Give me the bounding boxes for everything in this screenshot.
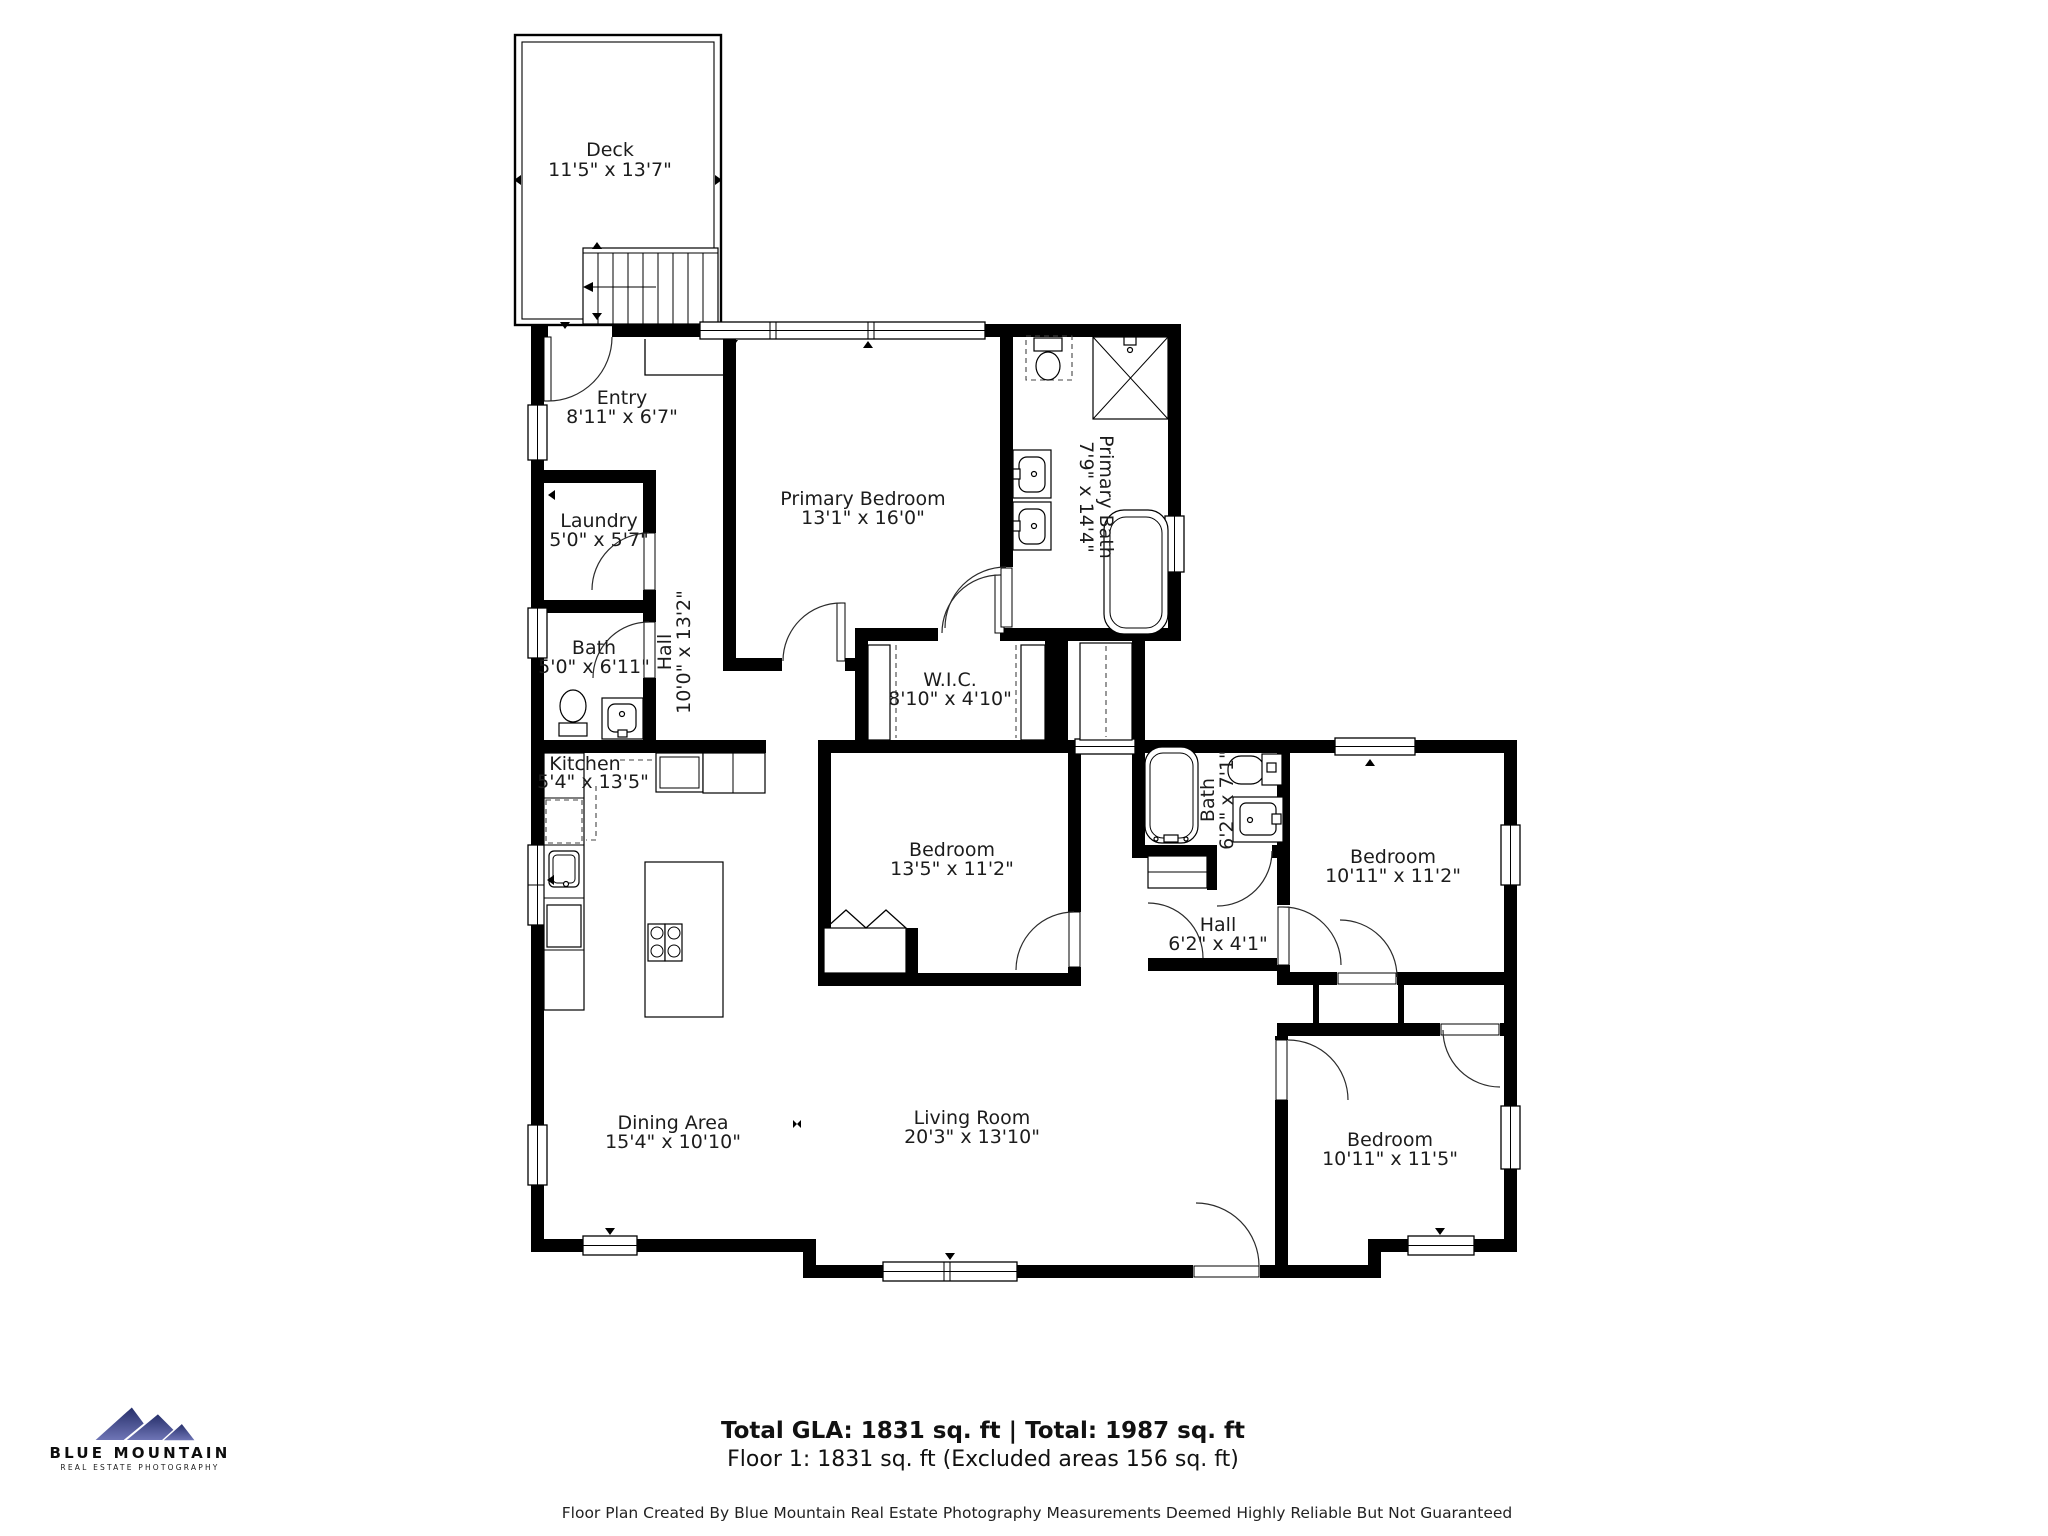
footer-floor: Floor 1: 1831 sq. ft (Excluded areas 156… [727, 1447, 1239, 1472]
floor-plan-canvas: Deck 11'5" x 13'7" Entry 8'11" x 6'7" La… [0, 0, 2048, 1536]
lower-bedroom-door-leaf [1276, 1040, 1287, 1100]
svg-text:Deck: Deck [586, 139, 634, 161]
svg-text:15'4" x 10'10": 15'4" x 10'10" [605, 1131, 741, 1153]
window-band-top [700, 322, 985, 339]
window-dining-bottom [583, 1236, 637, 1255]
svg-text:13'1" x 16'0": 13'1" x 16'0" [801, 507, 925, 529]
entry-closet [645, 339, 725, 375]
sink-icon [1013, 502, 1051, 550]
room-label-hall-main: Hall 10'0" x 13'2" [654, 590, 695, 714]
room-label-dining: Dining Area 15'4" x 10'10" [605, 1112, 741, 1153]
room-label-bath-main: Bath 5'0" x 6'11" [538, 637, 650, 678]
room-label-bedroom-lower-right: Bedroom 10'11" x 11'5" [1322, 1129, 1458, 1170]
svg-text:6'2" x 7'1": 6'2" x 7'1" [1216, 750, 1238, 850]
room-label-deck: Deck 11'5" x 13'7" [548, 139, 672, 181]
primary-bedroom-door-leaf [837, 603, 845, 661]
svg-text:5'0" x 6'11": 5'0" x 6'11" [538, 656, 650, 678]
mountain-icon [93, 1406, 196, 1441]
room-label-kitchen: Kitchen 5'4" x 13'5" [537, 753, 649, 793]
room-label-laundry: Laundry 5'0" x 5'7" [549, 510, 649, 551]
upper-closet-door-leaf [1338, 973, 1396, 984]
window-bedroom-lower-right [1501, 1106, 1520, 1169]
svg-text:11'5" x 13'7": 11'5" x 13'7" [548, 159, 672, 181]
svg-text:Primary Bath: Primary Bath [1095, 435, 1117, 559]
room-label-primary-bedroom: Primary Bedroom 13'1" x 16'0" [780, 488, 945, 529]
logo-name: BLUE MOUNTAIN [50, 1444, 231, 1462]
svg-text:10'0" x 13'2": 10'0" x 13'2" [673, 590, 695, 714]
svg-text:10'11" x 11'5": 10'11" x 11'5" [1322, 1148, 1458, 1170]
svg-text:7'9" x 14'4": 7'9" x 14'4" [1075, 441, 1097, 553]
window-wing-top [1335, 738, 1415, 755]
window-entry-left [528, 405, 547, 460]
svg-text:20'3" x 13'10": 20'3" x 13'10" [904, 1126, 1040, 1148]
room-label-hall-small: Hall 6'2" x 4'1" [1168, 914, 1268, 955]
svg-text:6'2" x 4'1": 6'2" x 4'1" [1168, 933, 1268, 955]
upper-bedroom-door-leaf [1278, 907, 1289, 965]
logo-tagline: REAL ESTATE PHOTOGRAPHY [60, 1463, 219, 1472]
footer-disclaimer: Floor Plan Created By Blue Mountain Real… [562, 1504, 1513, 1522]
svg-text:8'11" x 6'7": 8'11" x 6'7" [566, 406, 678, 428]
patio-door-leaf [1194, 1266, 1259, 1277]
kitchen-island [645, 862, 723, 1017]
room-label-bedroom-middle: Bedroom 13'5" x 11'2" [890, 839, 1014, 880]
room-label-bedroom-upper-right: Bedroom 10'11" x 11'2" [1325, 846, 1461, 887]
room-label-entry: Entry 8'11" x 6'7" [566, 387, 678, 428]
hall-closet [1080, 643, 1132, 740]
deck-stairs [583, 248, 718, 324]
footer-totals: Total GLA: 1831 sq. ft | Total: 1987 sq.… [721, 1418, 1245, 1444]
room-label-primary-bath: Primary Bath 7'9" x 14'4" [1075, 435, 1117, 559]
counter [703, 753, 765, 793]
primary-bath-door-leaf [1001, 568, 1012, 627]
svg-text:13'5" x 11'2": 13'5" x 11'2" [890, 858, 1014, 880]
room-label-living: Living Room 20'3" x 13'10" [904, 1107, 1040, 1148]
sink-icon [602, 698, 643, 739]
svg-text:10'11" x 11'2": 10'11" x 11'2" [1325, 865, 1461, 887]
oven-icon [547, 905, 581, 947]
main-bath-fixtures [559, 690, 643, 739]
middle-bedroom-closet [824, 910, 906, 973]
window-bedroom-upper-right [1501, 825, 1520, 885]
blue-mountain-logo: BLUE MOUNTAIN REAL ESTATE PHOTOGRAPHY [50, 1406, 231, 1472]
window-bedroom-bottom [1408, 1236, 1474, 1255]
bathtub-icon [1145, 747, 1198, 843]
sink-icon [1233, 797, 1283, 842]
cased-opening-hall [1075, 739, 1135, 754]
fridge-icon [656, 753, 703, 792]
lower-closet-door-leaf [1441, 1024, 1499, 1035]
window-living-bottom [883, 1262, 1017, 1281]
sink-icon [1013, 450, 1051, 498]
linen-closet [1148, 856, 1207, 888]
svg-text:8'10" x 4'10": 8'10" x 4'10" [888, 688, 1012, 710]
toilet-icon [1034, 338, 1062, 351]
middle-bedroom-door-leaf [1069, 912, 1080, 967]
footer: Total GLA: 1831 sq. ft | Total: 1987 sq.… [562, 1418, 1513, 1522]
window-bath-left [528, 608, 547, 658]
toilet-icon [559, 690, 587, 736]
front-door-leaf [544, 337, 551, 401]
room-label-bath-hall: Bath 6'2" x 7'1" [1197, 750, 1238, 850]
svg-text:5'0" x 5'7": 5'0" x 5'7" [549, 529, 649, 551]
room-label-wic: W.I.C. 8'10" x 4'10" [888, 669, 1012, 710]
svg-text:5'4" x 13'5": 5'4" x 13'5" [537, 771, 649, 793]
window-dining-left [528, 1125, 547, 1185]
